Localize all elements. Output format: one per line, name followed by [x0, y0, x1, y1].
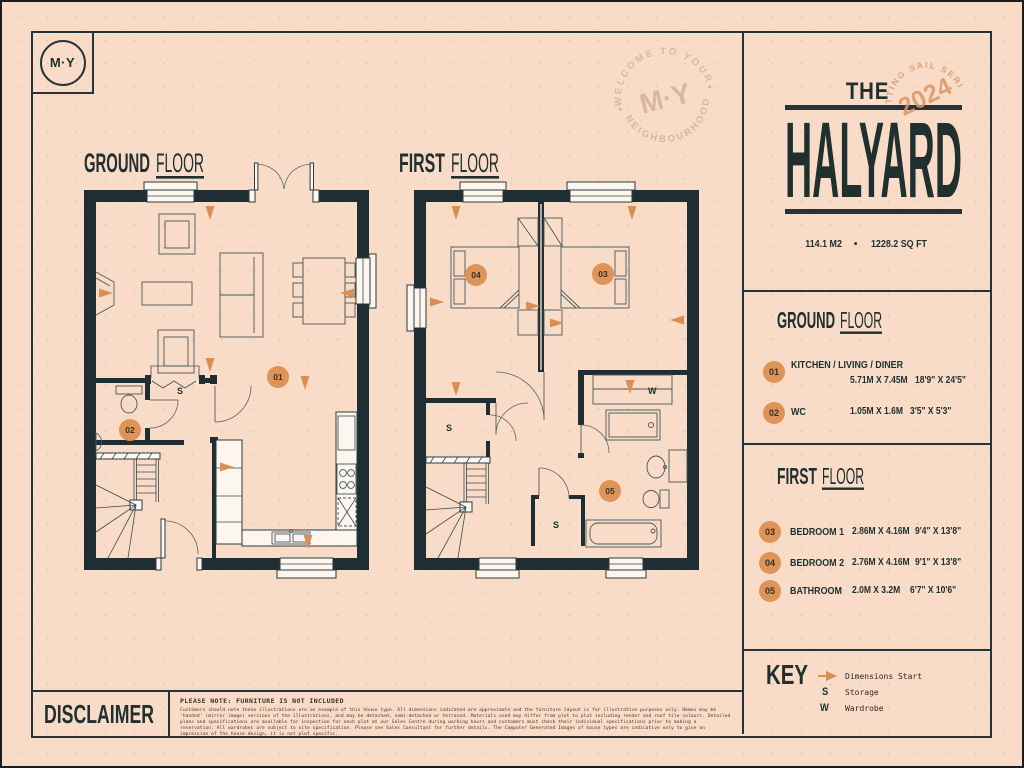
- room-badge-04: 04: [759, 552, 781, 574]
- dimension-arrows: [430, 206, 684, 396]
- svg-text:GROUND: GROUND: [777, 307, 835, 333]
- svg-text:FLOOR: FLOOR: [840, 307, 882, 333]
- svg-text:KEY: KEY: [766, 661, 808, 690]
- room-name: BEDROOM 2: [790, 557, 844, 569]
- room-name: BATHROOM: [790, 585, 842, 597]
- window: [476, 558, 519, 578]
- room-dim-metric: 2.76M X 4.16M: [852, 557, 910, 568]
- ground-floor-plan: S 01 02: [74, 158, 382, 582]
- room-dim-metric: 2.0M X 3.2M: [852, 585, 900, 596]
- window: [606, 558, 646, 578]
- room-dim-imperial: 18'9" X 24'5": [915, 375, 966, 386]
- disclaimer-bar: DISCLAIMER PLEASE NOTE: FURNITURE IS NOT…: [31, 690, 742, 738]
- disclaimer-body-cell: PLEASE NOTE: FURNITURE IS NOT INCLUDED C…: [170, 692, 742, 738]
- entrance-door: [156, 519, 202, 571]
- info-column: THE HALYARD 114.1 M2 • 1228.2 SQ FT SETT…: [742, 33, 990, 734]
- storage-label: S: [446, 423, 452, 433]
- room-dim-metric: 2.86M X 4.16M: [852, 526, 910, 537]
- storage-symbol: S: [822, 686, 828, 698]
- room-dim-imperial: 6'7" X 10'6": [910, 585, 956, 596]
- wardrobe-label: W: [648, 386, 657, 396]
- floor-area: 114.1 M2 • 1228.2 SQ FT: [744, 238, 990, 250]
- room-marker-05: 05: [599, 480, 621, 502]
- svg-text:03: 03: [598, 269, 608, 279]
- window: [407, 285, 426, 331]
- shower: [606, 410, 660, 440]
- basin: [647, 456, 667, 478]
- area-separator: •: [854, 238, 858, 250]
- key-label: Wardrobe: [845, 704, 884, 713]
- floorplan-sheet: M·Y WELCOME TO YOUR NEIGHBOURHOOD M·Y GR…: [0, 0, 1024, 768]
- room-badge-02: 02: [763, 402, 785, 424]
- room-badge-05: 05: [759, 580, 781, 602]
- bathroom-niche: [669, 450, 687, 482]
- room-dim-imperial: 9'1" X 13'8": [915, 557, 961, 568]
- room-marker-01: 01: [267, 366, 289, 388]
- wardrobe-symbol: W: [820, 702, 829, 714]
- svg-text:04: 04: [471, 270, 481, 280]
- room-marker-03: 03: [592, 263, 614, 285]
- kitchen-units: [216, 412, 357, 546]
- area-imperial: 1228.2 SQ FT: [871, 238, 927, 250]
- key-panel: KEY Dimensions Start S Storage W Wardrob…: [744, 651, 990, 734]
- room-name: KITCHEN / LIVING / DINER: [791, 359, 903, 371]
- title-rule-bottom: [785, 209, 962, 214]
- key-label: Storage: [845, 688, 879, 697]
- svg-text:02: 02: [125, 425, 135, 435]
- disclaimer-note: PLEASE NOTE: FURNITURE IS NOT INCLUDED: [180, 697, 732, 705]
- first-floor-plan: S S W 04 03 05: [404, 158, 712, 582]
- window: [277, 558, 336, 578]
- disclaimer-title-cell: DISCLAIMER: [31, 692, 170, 738]
- armchair: [159, 214, 195, 254]
- dimensions-start-icon: [818, 671, 838, 681]
- room-name: WC: [791, 406, 806, 418]
- disclaimer-text: Customers should note these illustration…: [180, 708, 732, 738]
- svg-text:01: 01: [273, 372, 283, 382]
- ground-spec-title: GROUND FLOOR: [777, 304, 907, 338]
- toilet: [643, 490, 669, 508]
- stamp-year: 2024: [894, 72, 956, 122]
- dining-table: [293, 258, 355, 324]
- logo-text: M·Y: [50, 55, 75, 70]
- staircase: [96, 453, 160, 558]
- bathtub: [586, 520, 661, 547]
- storage-label: S: [553, 520, 559, 530]
- brand-logo: M·Y: [40, 40, 86, 86]
- window: [460, 182, 506, 202]
- first-floor-spec-panel: FIRST FLOOR 03 BEDROOM 1 2.86M X 4.16M 9…: [744, 445, 990, 651]
- room-marker-02: 02: [119, 419, 141, 441]
- key-label: Dimensions Start: [845, 672, 922, 681]
- room-name: BEDROOM 1: [790, 526, 844, 538]
- window: [356, 254, 376, 308]
- staircase: [426, 457, 490, 558]
- first-spec-title: FIRST FLOOR: [777, 460, 907, 494]
- watermark-center: M·Y: [636, 77, 694, 120]
- room-dim-metric: 1.05M X 1.6M: [850, 406, 903, 417]
- key-title: KEY: [766, 661, 826, 691]
- window: [144, 182, 197, 202]
- wardrobe: [593, 375, 672, 404]
- coffee-table: [142, 282, 192, 305]
- room-dim-imperial: 3'5" X 5'3": [910, 406, 951, 417]
- room-badge-01: 01: [763, 361, 785, 383]
- disclaimer-title: DISCLAIMER: [44, 701, 156, 729]
- storage-label: S: [177, 386, 183, 396]
- room-dim-imperial: 9'4" X 13'8": [915, 526, 961, 537]
- svg-text:DISCLAIMER: DISCLAIMER: [44, 701, 154, 729]
- room-badge-03: 03: [759, 521, 781, 543]
- area-metric: 114.1 M2: [805, 238, 842, 250]
- sofa: [220, 253, 263, 337]
- watermark-stamp: WELCOME TO YOUR NEIGHBOURHOOD M·Y: [600, 33, 730, 163]
- room-dim-metric: 5.71M X 7.45M: [850, 375, 908, 386]
- armchair: [158, 330, 194, 373]
- room-marker-04: 04: [465, 264, 487, 286]
- ground-floor-spec-panel: GROUND FLOOR 01 KITCHEN / LIVING / DINER…: [744, 292, 990, 445]
- logo-box: M·Y: [31, 31, 94, 94]
- french-doors: [249, 163, 319, 203]
- svg-text:FLOOR: FLOOR: [822, 463, 864, 489]
- series-stamp: SETTING SAIL SERIES 2024: [874, 41, 974, 141]
- svg-text:FIRST: FIRST: [777, 463, 817, 489]
- window: [567, 182, 635, 202]
- svg-text:05: 05: [605, 486, 615, 496]
- title-panel: THE HALYARD 114.1 M2 • 1228.2 SQ FT SETT…: [744, 33, 990, 292]
